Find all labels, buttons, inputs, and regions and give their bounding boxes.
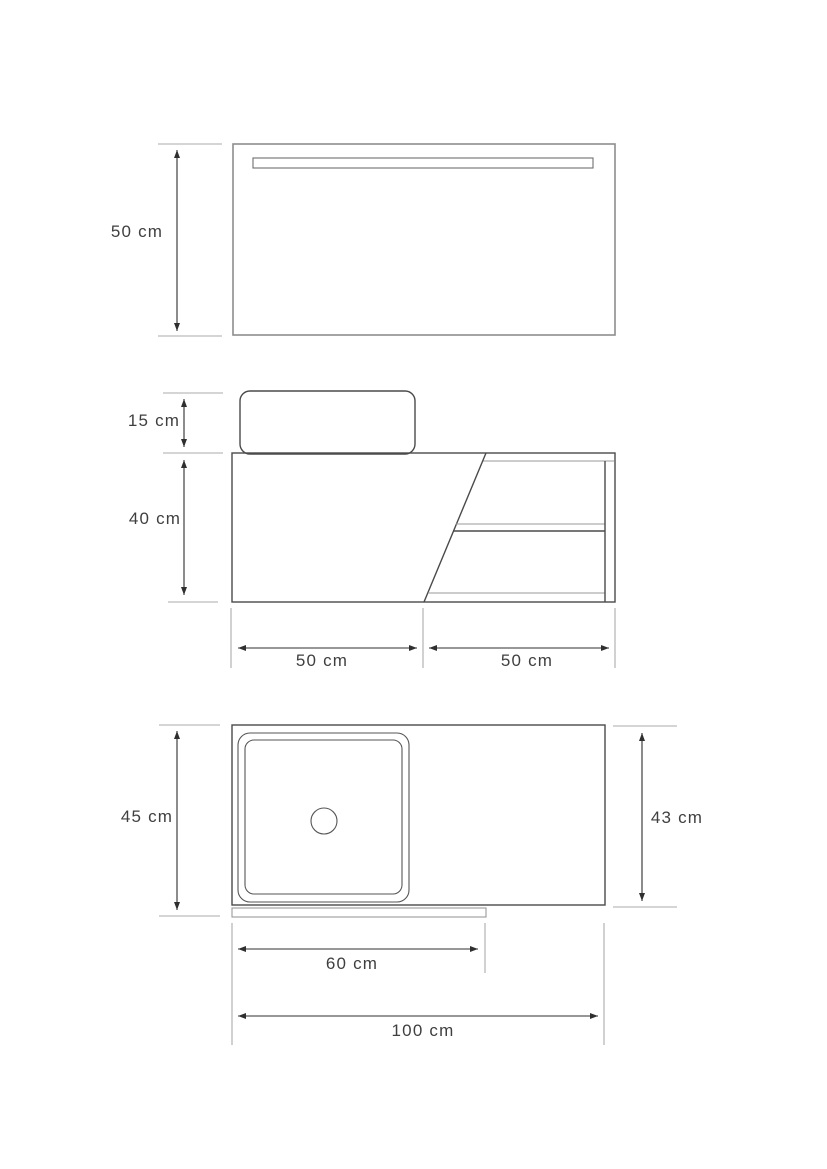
dimension-label-countertop-depth: 43 cm — [651, 808, 703, 827]
vanity-front-view: 15 cm 40 cm 50 cm 50 cm — [128, 391, 615, 670]
mirror-light-strip — [253, 158, 593, 168]
door-diagonal-edge — [424, 453, 486, 602]
drain-hole — [311, 808, 337, 834]
technical-drawing-page: 50 cm 15 cm 40 cm 50 cm — [0, 0, 827, 1169]
mirror-front-view: 50 cm — [111, 144, 615, 336]
vanity-top-view: 45 cm 43 cm 60 cm 100 cm — [121, 725, 703, 1045]
dimension-label-left-section-width: 50 cm — [296, 651, 348, 670]
vanity-drawing-canvas: 50 cm 15 cm 40 cm 50 cm — [0, 0, 827, 1169]
dimension-label-total-width: 100 cm — [392, 1021, 455, 1040]
basin-front-outline — [240, 391, 415, 454]
countertop-outline — [232, 725, 605, 905]
dimension-label-right-section-width: 50 cm — [501, 651, 553, 670]
cabinet-outline — [232, 453, 615, 602]
basin-inner-rim — [245, 740, 402, 894]
dimension-label-cabinet-width: 60 cm — [326, 954, 378, 973]
basin-outer-rim — [238, 733, 409, 902]
dimension-label-cabinet-height: 40 cm — [129, 509, 181, 528]
dimension-label-total-depth: 45 cm — [121, 807, 173, 826]
dimension-label-basin-height: 15 cm — [128, 411, 180, 430]
mirror-outline — [233, 144, 615, 335]
cabinet-front-edge-strip — [232, 908, 486, 917]
dimension-label-mirror-height: 50 cm — [111, 222, 163, 241]
